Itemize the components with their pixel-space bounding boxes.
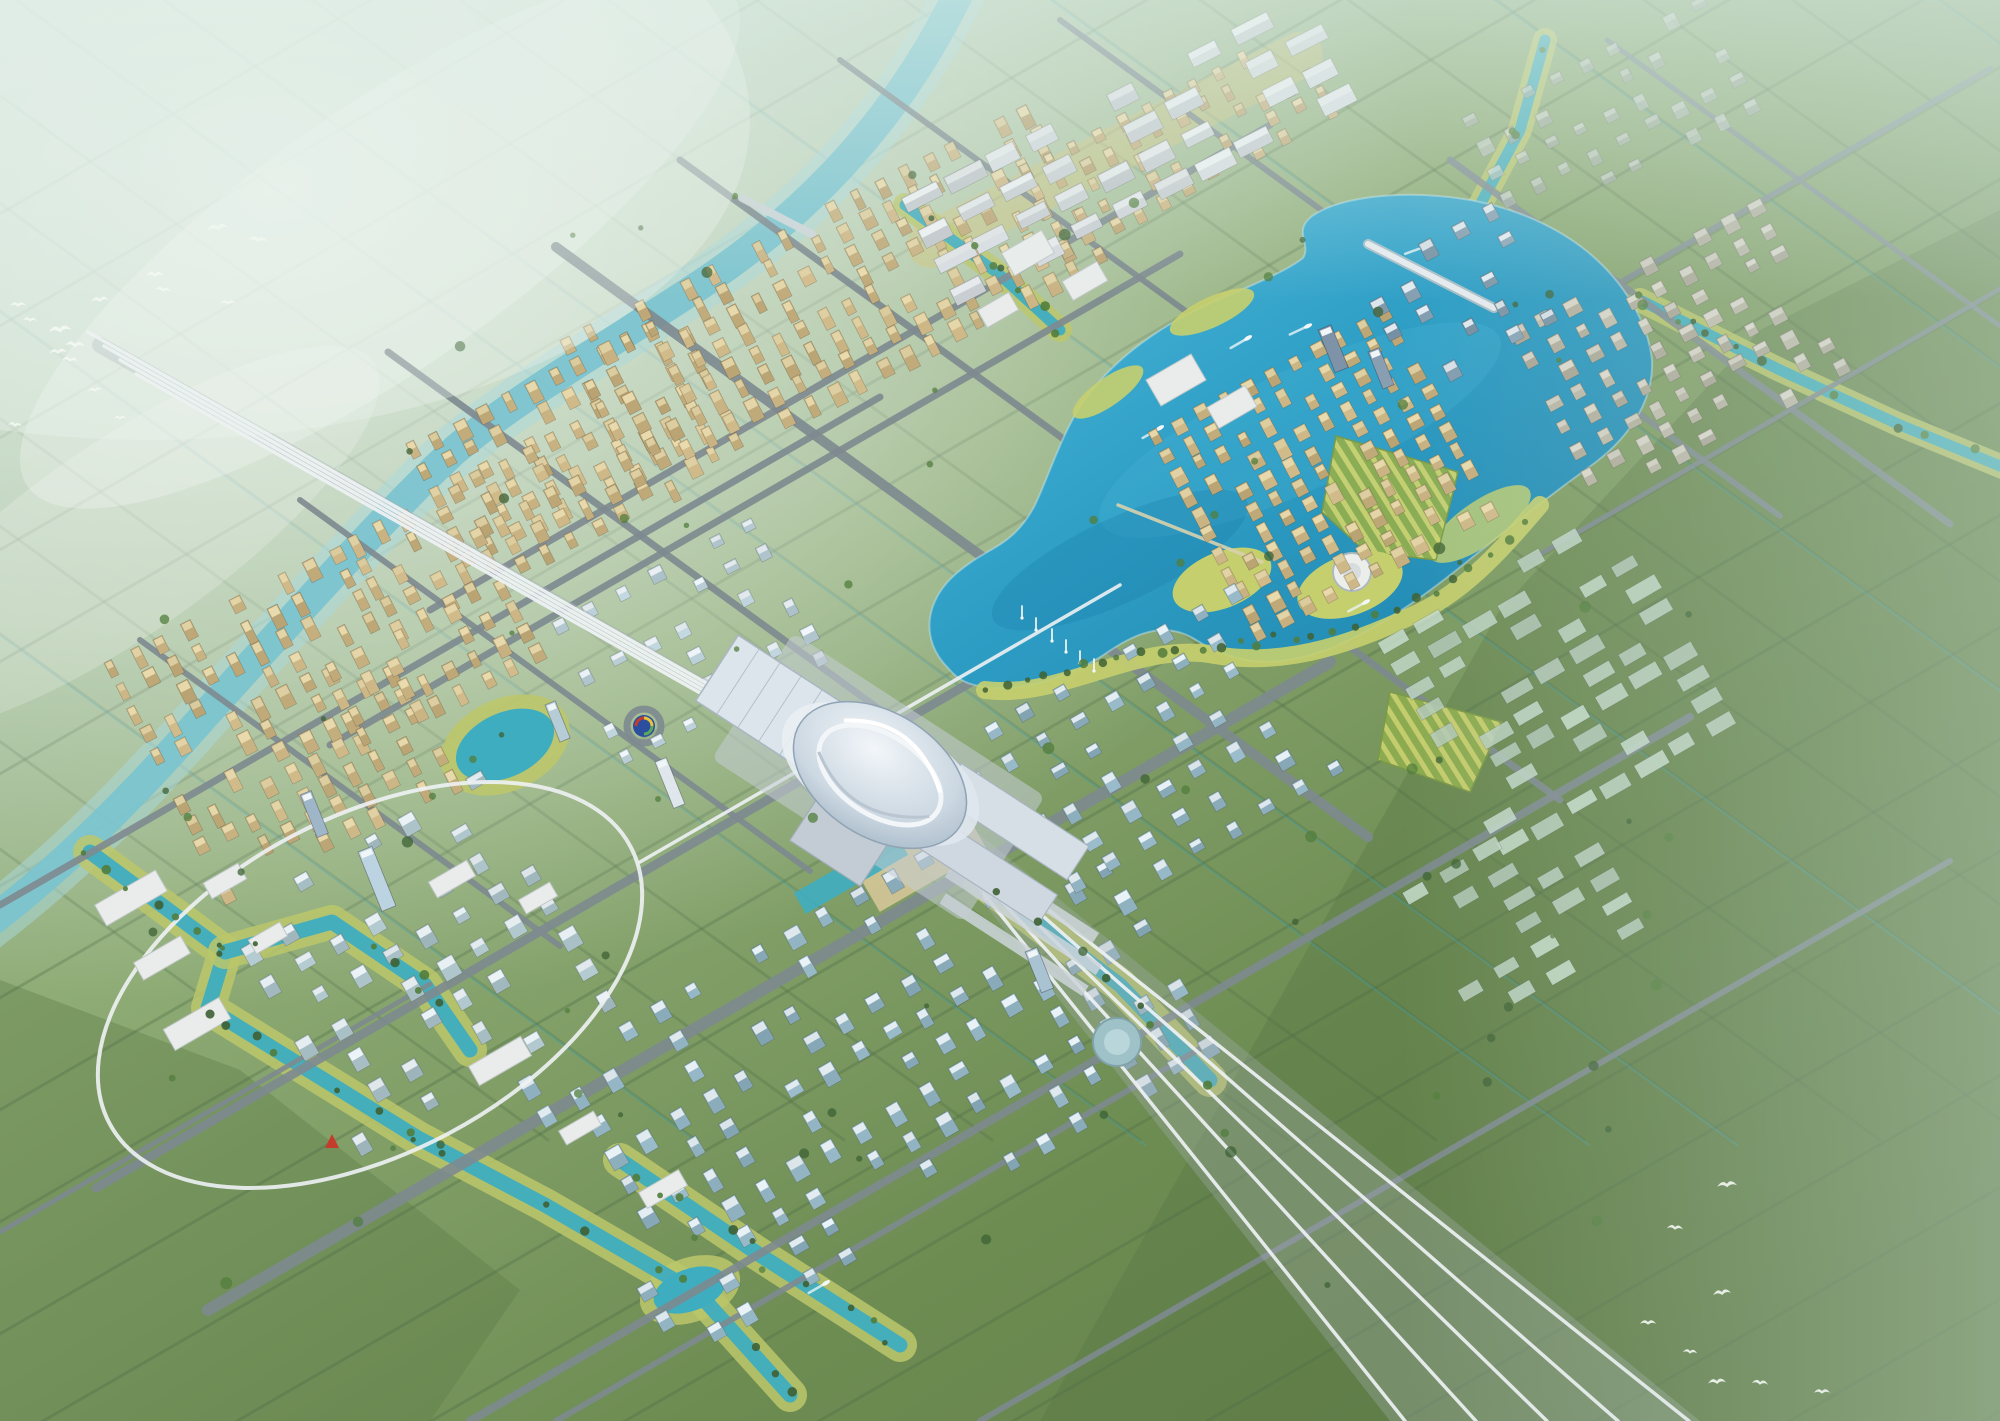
tree (1113, 655, 1119, 661)
tree (334, 1087, 340, 1093)
tree (924, 1003, 929, 1008)
tree (1328, 628, 1336, 636)
tree (193, 927, 201, 935)
tree (787, 1387, 797, 1397)
tree (390, 1145, 396, 1151)
tree (406, 448, 413, 455)
tree (772, 1370, 779, 1377)
tree (371, 943, 377, 949)
tree (419, 970, 429, 980)
tree (1137, 647, 1146, 656)
tree (882, 1340, 888, 1346)
tree (436, 1140, 444, 1148)
tree (220, 1277, 232, 1289)
tree (602, 951, 610, 959)
tree (1025, 677, 1030, 682)
tree (1252, 642, 1261, 651)
tree (1034, 917, 1042, 925)
tree (580, 1226, 589, 1235)
tree (620, 514, 629, 523)
tree (162, 787, 169, 794)
tree (102, 865, 112, 875)
tree (1100, 1110, 1109, 1119)
tree (1225, 1146, 1236, 1157)
tree (543, 1201, 549, 1207)
tree (1079, 659, 1088, 668)
tree (1293, 636, 1300, 643)
tree (932, 387, 937, 392)
tree (221, 1021, 230, 1030)
tree (237, 868, 244, 875)
tree (402, 836, 413, 847)
tree (927, 461, 934, 468)
tree (1146, 1021, 1154, 1029)
tree (1064, 669, 1071, 676)
tree (415, 987, 422, 994)
tree (435, 999, 443, 1007)
tree (1270, 631, 1276, 637)
tree (160, 615, 170, 625)
tree (1373, 307, 1383, 317)
tree (632, 1174, 640, 1182)
tree (1003, 681, 1012, 690)
tree (439, 1150, 446, 1157)
tree (691, 1234, 698, 1241)
tree (1099, 659, 1107, 667)
tree (1176, 559, 1184, 567)
tree (253, 941, 258, 946)
tree (1102, 974, 1111, 983)
tree (172, 913, 179, 920)
tree (871, 1317, 877, 1323)
tree (205, 1010, 214, 1019)
tree (1039, 671, 1047, 679)
tree (149, 928, 158, 937)
tree (169, 1075, 176, 1082)
tree (1221, 1129, 1229, 1137)
tree (154, 900, 163, 909)
tree (469, 755, 477, 763)
tree (565, 1008, 570, 1013)
tree (1171, 646, 1179, 654)
tree (1251, 458, 1258, 465)
tree (1217, 643, 1226, 652)
tree (1078, 947, 1087, 956)
tree (657, 1192, 663, 1198)
tree (353, 1216, 363, 1226)
tree (183, 813, 192, 822)
tree (1089, 516, 1098, 525)
tree (321, 716, 326, 721)
tree (993, 888, 1000, 895)
tree (1238, 638, 1244, 644)
tree (411, 1137, 416, 1142)
tree (1292, 919, 1299, 926)
tree (983, 687, 989, 693)
scene-svg (0, 0, 2000, 1421)
tree (81, 850, 86, 855)
tree (1324, 1282, 1330, 1288)
tree (759, 1266, 766, 1273)
tree (574, 1089, 583, 1098)
sailboat-hull (1050, 639, 1053, 642)
tree (1200, 647, 1207, 654)
tree (1181, 785, 1190, 794)
tree (808, 813, 818, 823)
tree (390, 958, 399, 967)
tree (803, 1281, 809, 1287)
tree (509, 630, 514, 635)
tree (270, 1049, 278, 1057)
tree (981, 1234, 991, 1244)
tree (1210, 511, 1218, 519)
tree (216, 951, 222, 957)
sailboat-hull (1064, 650, 1067, 653)
tree (728, 1225, 738, 1235)
tree (1264, 551, 1274, 561)
tree (499, 732, 505, 738)
tree (1203, 1080, 1212, 1089)
tree (1137, 1002, 1144, 1009)
tree (799, 1148, 809, 1158)
tree (1307, 633, 1314, 640)
tree (655, 796, 661, 802)
tree (1043, 742, 1055, 754)
tree (676, 1193, 684, 1201)
tree (844, 580, 852, 588)
tree (856, 1156, 862, 1162)
right-haze (1400, 0, 2000, 1421)
tree (429, 793, 436, 800)
tree (407, 1128, 415, 1136)
tree (123, 886, 128, 891)
tree (1040, 301, 1050, 311)
tree (828, 1108, 837, 1117)
tree (848, 1304, 855, 1311)
cylinder-top (1104, 1029, 1130, 1055)
tree (253, 1031, 262, 1040)
tree (679, 1275, 687, 1283)
tree (618, 1112, 623, 1117)
tree (1394, 607, 1401, 614)
tree (1352, 623, 1359, 630)
tree (684, 523, 689, 528)
tree (734, 646, 740, 652)
tree (499, 493, 509, 503)
aerial-city-render (0, 0, 2000, 1421)
tree (655, 1266, 662, 1273)
tree (1140, 774, 1150, 784)
tree (1051, 329, 1059, 337)
tree (752, 1343, 760, 1351)
tree (1158, 648, 1168, 658)
tree (750, 1238, 756, 1244)
tree (1371, 611, 1379, 619)
sailboat-hull (1020, 616, 1023, 619)
tree (220, 946, 225, 951)
tree (1305, 831, 1317, 843)
colorful-pavilion (633, 715, 655, 737)
sailboat-hull (1092, 669, 1095, 672)
tree (375, 1107, 383, 1115)
